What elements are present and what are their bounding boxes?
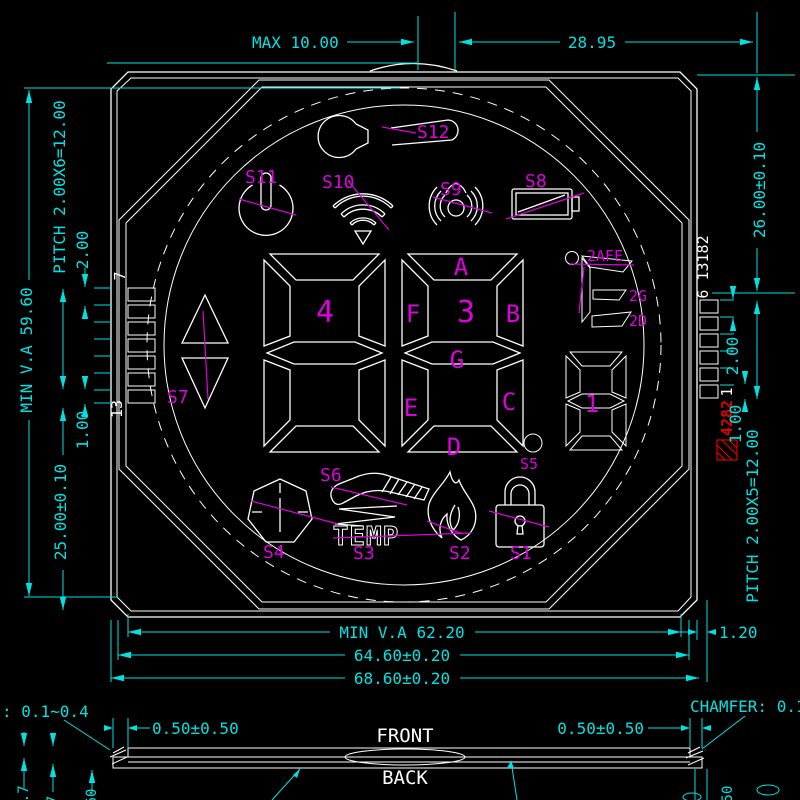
dim-left-step: 2.00: [73, 231, 92, 313]
dim-bottom-mid: 64.60±0.20: [118, 646, 689, 665]
cut-dim-d: 50: [720, 786, 736, 800]
cut-dim-b: 7: [45, 796, 61, 800]
decimal-point-segment: [524, 434, 542, 452]
dimension-extension-lines: [24, 12, 795, 682]
segment-label-f: F: [406, 300, 420, 328]
svg-text:PITCH 2.00X6=12.00: PITCH 2.00X6=12.00: [50, 100, 69, 273]
cad-drawing: 7 13 6 13182 1 4282: [0, 0, 800, 800]
chamfer-note-right: CHAMFER: 0.1~: [690, 697, 800, 749]
dim-left-pitch: PITCH 2.00X6=12.00: [50, 100, 69, 389]
pin-number-left-first: 7: [111, 271, 129, 280]
svg-text:: 0.1~0.4: : 0.1~0.4: [2, 702, 89, 721]
hand-sensor-icon: [331, 473, 429, 526]
svg-text:MIN V.A 59.60: MIN V.A 59.60: [17, 287, 36, 412]
segment-label-b: B: [506, 300, 520, 328]
back-label: BACK: [382, 767, 428, 789]
dim-side-left-tol: 0.50±0.50: [104, 718, 239, 748]
dim-bottom-va: MIN V.A 62.20: [128, 623, 681, 642]
digit-small-number: 1: [585, 390, 599, 418]
digit-right-number: 3: [457, 295, 475, 330]
segment-label-c: C: [502, 388, 516, 416]
label-s5: S5: [520, 455, 538, 473]
segment-label-a: A: [454, 253, 469, 281]
segment-label-e: E: [404, 394, 418, 422]
label-s4: S4: [263, 542, 285, 563]
lock-icon: [496, 477, 544, 547]
main-view: 7 13 6 13182 1 4282: [17, 12, 795, 688]
svg-text:25.00±0.10: 25.00±0.10: [51, 464, 70, 560]
label-s12: S12: [417, 122, 450, 143]
label-s6: S6: [320, 465, 342, 486]
gauge-icon: [248, 479, 312, 542]
dim-right-pitch: PITCH 2.00X5=12.00: [743, 301, 762, 603]
unit-label-top: 2AFE: [587, 247, 623, 265]
dim-side-right-tol: 0.50±0.50: [557, 718, 711, 748]
dim-right-step: 2.00: [723, 291, 742, 375]
label-s10: S10: [322, 172, 355, 193]
svg-text:1.20: 1.20: [719, 623, 758, 642]
wifi-icon: [333, 194, 393, 244]
svg-text:0.50±0.50: 0.50±0.50: [557, 719, 644, 738]
pin-number-right-top: 6 13182: [694, 235, 712, 298]
digit-left-segments: [264, 254, 385, 452]
dim-left-gap: 1.00: [73, 381, 92, 449]
left-connector-pads: 7 13: [94, 271, 155, 418]
cut-dim-c: 60: [84, 789, 100, 800]
svg-text:1.00: 1.00: [73, 411, 92, 450]
left-pad-ticks: [94, 288, 112, 403]
cut-dim-a: 0.7: [16, 785, 32, 800]
dim-max-top: MAX 10.00: [252, 33, 414, 52]
svg-text:68.60±0.20: 68.60±0.20: [354, 669, 450, 688]
svg-text:CHAMFER: 0.1~: CHAMFER: 0.1~: [690, 697, 800, 716]
label-s11: S11: [245, 167, 278, 188]
svg-text:MAX 10.00: MAX 10.00: [252, 33, 339, 52]
digit-left-number: 4: [316, 295, 334, 330]
chamfer-note-left: : 0.1~0.4: [2, 702, 110, 750]
dim-right-height: 26.00±0.10: [750, 77, 769, 291]
front-label: FRONT: [376, 725, 433, 747]
dim-left-height: 25.00±0.10: [51, 408, 70, 610]
svg-text:28.95: 28.95: [568, 33, 616, 52]
outer-frame: [111, 64, 697, 618]
svg-text:2.00: 2.00: [723, 337, 742, 376]
dim-bottom-outer: 68.60±0.20: [111, 669, 699, 688]
fill-port-bump: [370, 64, 457, 72]
svg-text:26.00±0.10: 26.00±0.10: [750, 142, 769, 238]
svg-text:PITCH 2.00X5=12.00: PITCH 2.00X5=12.00: [743, 429, 762, 602]
unit-label-bot: 2D: [629, 312, 647, 330]
unit-label-mid: 2G: [629, 287, 647, 305]
segment-label-g: G: [450, 346, 464, 374]
segment-label-d: D: [447, 433, 461, 461]
battery-icon: [512, 189, 579, 219]
glass-cross-section: [110, 747, 704, 768]
label-s7: S7: [167, 387, 189, 408]
pin-number-right-bottom: 1: [718, 387, 736, 396]
side-view: FRONT BACK 0.50±0.50 0.50±0.50 : 0.1~0.4…: [2, 697, 800, 800]
svg-text:0.50±0.50: 0.50±0.50: [152, 719, 239, 738]
label-s1: S1: [510, 543, 532, 564]
label-s8: S8: [525, 171, 547, 192]
svg-text:MIN V.A 62.20: MIN V.A 62.20: [339, 623, 464, 642]
dim-left-va: MIN V.A 59.60: [17, 90, 36, 596]
label-s2: S2: [449, 543, 471, 564]
label-s9: S9: [440, 179, 462, 200]
svg-text:2.00: 2.00: [73, 231, 92, 270]
svg-text:64.60±0.20: 64.60±0.20: [354, 646, 450, 665]
dim-top-width: 28.95: [459, 33, 753, 52]
label-s3: S3: [353, 543, 375, 564]
